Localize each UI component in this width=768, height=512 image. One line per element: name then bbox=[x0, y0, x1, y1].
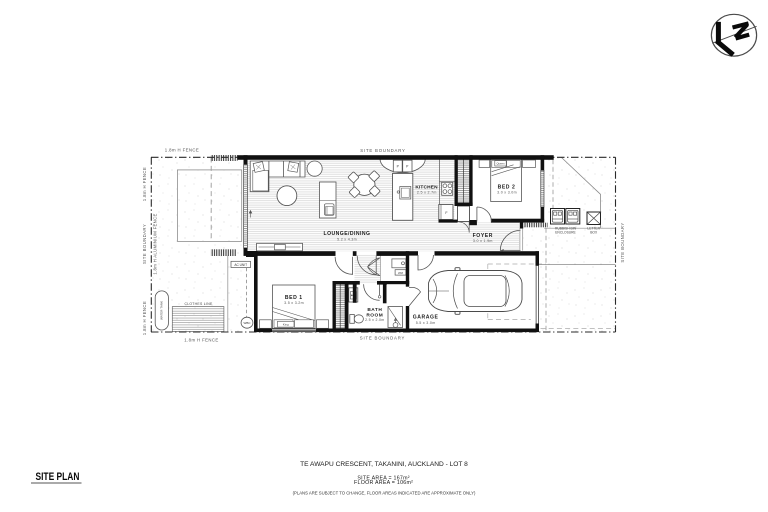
svg-text:5.5 x 3.0m: 5.5 x 3.0m bbox=[416, 321, 436, 325]
svg-text:SITE PLAN: SITE PLAN bbox=[35, 471, 79, 483]
svg-text:BED 1: BED 1 bbox=[285, 295, 303, 301]
svg-text:WATER TANK: WATER TANK bbox=[160, 301, 164, 320]
svg-text:Queen: Queen bbox=[496, 162, 505, 166]
svg-text:ENCLOSURE: ENCLOSURE bbox=[555, 231, 576, 235]
svg-text:2.5 x 2.7m: 2.5 x 2.7m bbox=[417, 191, 437, 195]
svg-text:SITE BOUNDARY: SITE BOUNDARY bbox=[360, 336, 405, 341]
svg-text:King: King bbox=[283, 323, 289, 327]
svg-text:SITE BOUNDARY: SITE BOUNDARY bbox=[620, 222, 625, 262]
svg-text:1.8m H FENCE: 1.8m H FENCE bbox=[184, 338, 218, 343]
svg-text:1.8m H FENCE: 1.8m H FENCE bbox=[142, 301, 147, 335]
svg-text:1.8m H ALUMINIUM FENCE: 1.8m H ALUMINIUM FENCE bbox=[153, 213, 158, 274]
svg-text:BOX: BOX bbox=[590, 231, 598, 235]
svg-text:BATH: BATH bbox=[367, 307, 382, 313]
svg-text:2.5 x 2.0m: 2.5 x 2.0m bbox=[365, 318, 384, 322]
svg-text:AC UNIT: AC UNIT bbox=[234, 263, 247, 267]
svg-text:3.5 x 3.2m: 3.5 x 3.2m bbox=[284, 301, 304, 305]
svg-text:FLOOR AREA = 106m²: FLOOR AREA = 106m² bbox=[354, 480, 413, 486]
svg-text:CLOTHES LINE: CLOTHES LINE bbox=[184, 302, 213, 306]
svg-text:WBC: WBC bbox=[244, 321, 252, 325]
svg-text:(PLANS ARE SUBJECT TO CHANGE,: (PLANS ARE SUBJECT TO CHANGE, FLOOR AREA… bbox=[293, 491, 476, 496]
svg-text:1.8m H FENCE: 1.8m H FENCE bbox=[142, 167, 147, 201]
svg-text:WM: WM bbox=[398, 271, 404, 275]
svg-text:SITE BOUNDARY: SITE BOUNDARY bbox=[142, 224, 147, 264]
svg-text:TE AWAPU CRESCENT, TAKANINI, A: TE AWAPU CRESCENT, TAKANINI, AUCKLAND - … bbox=[300, 461, 468, 468]
svg-text:SITE BOUNDARY: SITE BOUNDARY bbox=[360, 148, 405, 153]
svg-text:3.0 x 1.9m: 3.0 x 1.9m bbox=[473, 239, 493, 243]
svg-text:LOUNGE/DINING: LOUNGE/DINING bbox=[324, 231, 371, 237]
svg-text:GARAGE: GARAGE bbox=[413, 315, 439, 321]
svg-text:3.0 x 3.0m: 3.0 x 3.0m bbox=[497, 190, 517, 194]
svg-text:5.2 x 4.3m: 5.2 x 4.3m bbox=[337, 237, 357, 241]
svg-text:1.8m H FENCE: 1.8m H FENCE bbox=[165, 148, 199, 153]
